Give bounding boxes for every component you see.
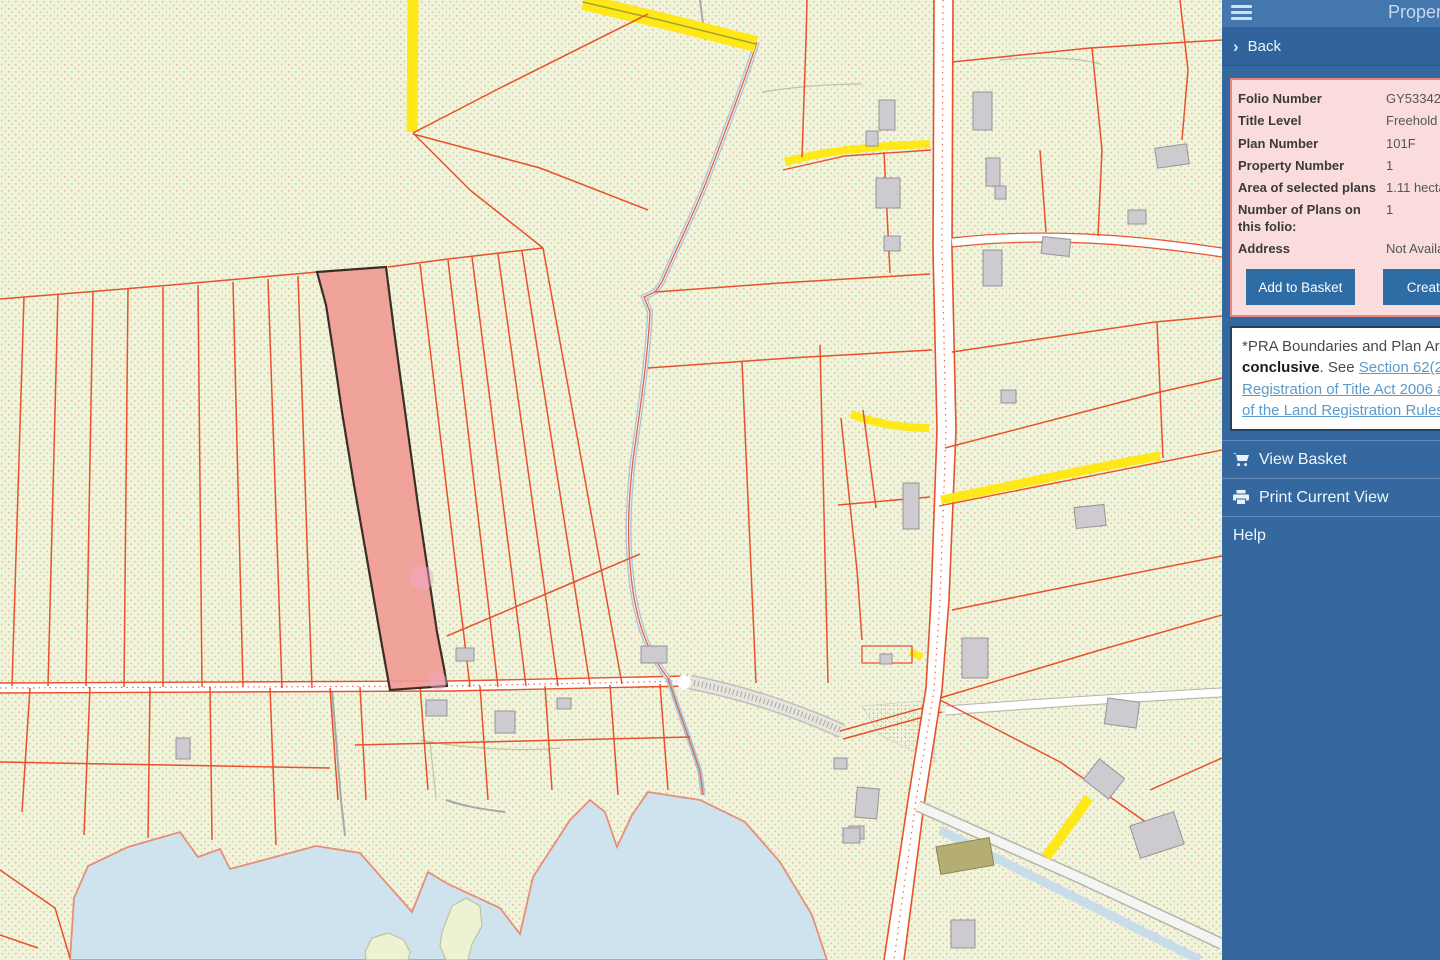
boundaries-disclaimer: *PRA Boundaries and Plan Area are not co… [1230,326,1440,431]
back-button[interactable]: › Back [1222,27,1440,66]
sidebar-menu: View Basket Print Current View Help [1222,440,1440,554]
table-row: Folio Number GY53342F [1238,88,1440,110]
table-row: Title Level Freehold [1238,110,1440,132]
add-to-basket-button[interactable]: Add to Basket [1246,269,1355,305]
print-current-view-button[interactable]: Print Current View [1222,478,1440,516]
property-details-panel: Folio Number GY53342F Title Level Freeho… [1230,78,1440,317]
sidebar-panel: Property › Back Folio Number GY53342F Ti… [1222,0,1440,960]
menu-label: View Basket [1259,451,1347,469]
help-button[interactable]: Help [1222,516,1440,554]
table-row: Number of Plans on this folio: 1 [1238,199,1440,238]
menu-label: Print Current View [1259,489,1389,507]
back-label: Back [1248,38,1281,55]
table-row: Address Not Available [1238,238,1440,260]
menu-label: Help [1233,527,1266,545]
printer-icon [1233,490,1259,505]
table-row: Area of selected plans 1.11 hectares [1238,177,1440,199]
view-basket-button[interactable]: View Basket [1222,440,1440,478]
panel-title: Property [1388,2,1440,23]
parcel-marker [410,566,434,590]
map-canvas[interactable] [0,0,1222,960]
chevron-right-icon: › [1233,38,1239,55]
disclaimer-text: *PRA Boundaries and Plan Area [1242,338,1440,355]
parcel-marker [429,672,447,690]
menu-icon[interactable] [1231,5,1252,23]
sidebar-header: Property [1222,0,1440,27]
table-row: Plan Number 101F [1238,133,1440,155]
create-button[interactable]: Create [1383,269,1440,305]
table-row: Property Number 1 [1238,155,1440,177]
cart-icon [1233,452,1259,467]
